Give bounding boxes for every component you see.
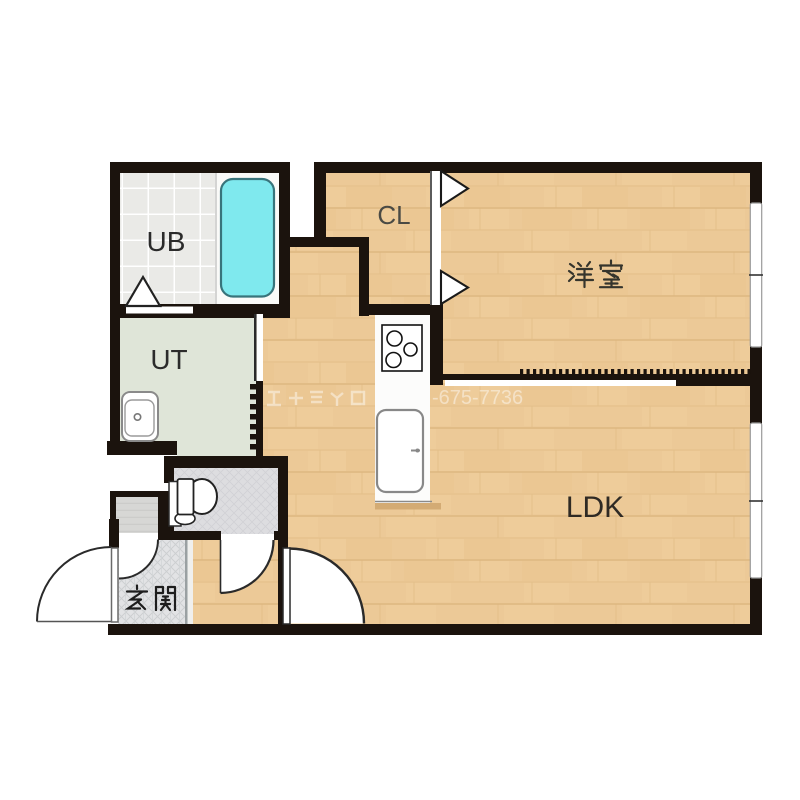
svg-text:LDK: LDK	[566, 491, 624, 524]
svg-text:UT: UT	[150, 344, 187, 375]
svg-text:-675-7736: -675-7736	[432, 387, 523, 409]
svg-text:CL: CL	[377, 200, 410, 230]
svg-text:UB: UB	[147, 226, 186, 257]
